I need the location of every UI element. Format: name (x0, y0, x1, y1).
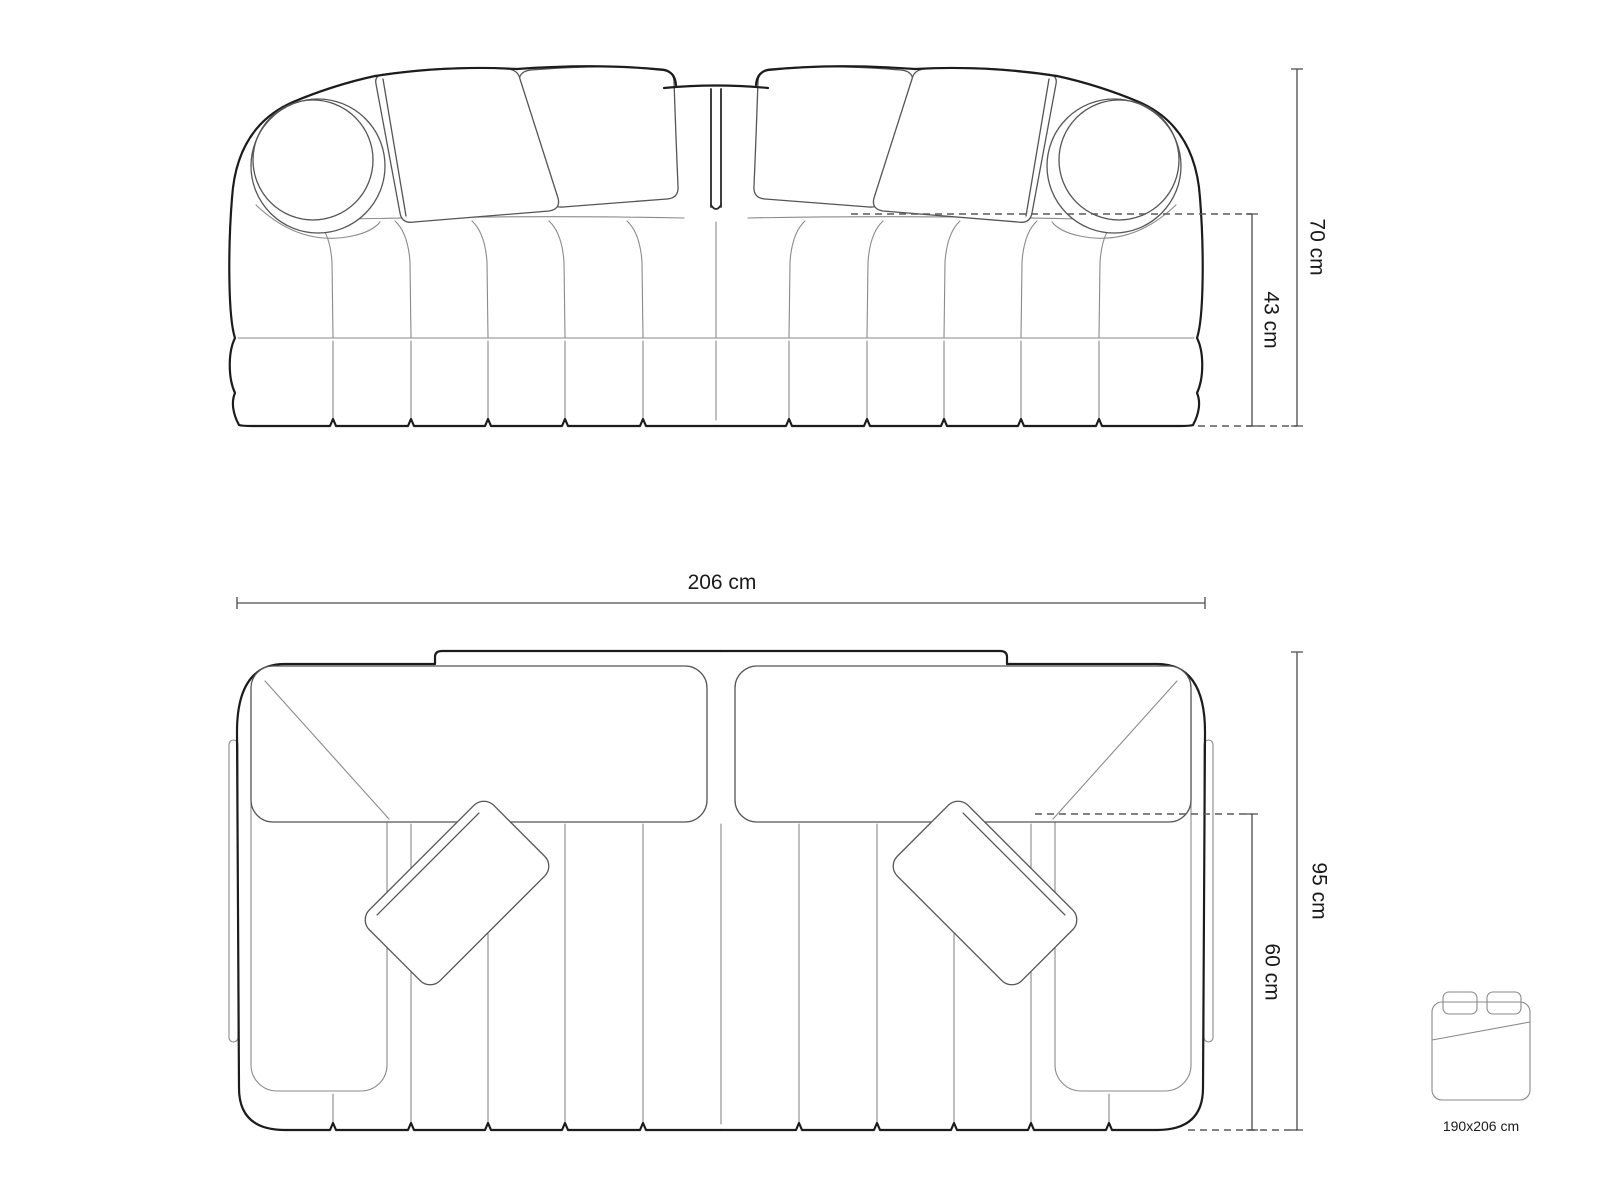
back-cushion-top-view (735, 666, 1191, 822)
seat-channel-line (1021, 221, 1037, 338)
top-bottom-edge (721, 1088, 1203, 1130)
seat-channel-line (627, 221, 643, 338)
seat-channel-line (472, 221, 488, 338)
dim-overall-width-label: 206 cm (688, 571, 757, 594)
front-view-drawing (229, 66, 1202, 426)
seat-channel-line (944, 221, 960, 338)
bed-icon: 190x206 cm (1432, 992, 1530, 1134)
back-top-edge-center (664, 86, 768, 89)
front-center-split (664, 86, 768, 421)
overall-width-dim-line (237, 597, 1205, 609)
sofa-technical-drawing: 70 cm 43 cm 206 cm 95 cm 60 cm 190x206 c… (0, 0, 1600, 1200)
bed-pillow-right (1487, 992, 1521, 1014)
sofa-bottom-edge (716, 419, 1193, 426)
throw-pillow-shape (359, 795, 554, 990)
bolster-cushion (1047, 99, 1181, 233)
throw-pillow-shape (887, 795, 1082, 990)
seat-depth-dim-line (1246, 814, 1258, 1130)
bolster-cushion (251, 99, 385, 233)
top-view-drawing (229, 651, 1213, 1130)
seat-channel-line (395, 221, 411, 338)
bed-pillow-left (1443, 992, 1477, 1014)
top-left-half (229, 651, 721, 1130)
sofa-bottom-edge (239, 419, 716, 426)
seat-height-dim-line (1246, 214, 1258, 426)
top-right-half (721, 651, 1213, 1130)
back-cushion-top-view (251, 666, 707, 822)
sleeping-area-label: 190x206 cm (1443, 1118, 1519, 1134)
bed-fold-line (1432, 1022, 1530, 1040)
back-split-bottom (711, 205, 721, 209)
diagram-canvas: 70 cm 43 cm 206 cm 95 cm 60 cm 190x206 c… (0, 0, 1600, 1200)
front-left-half (229, 66, 716, 426)
dim-overall-height-label: 70 cm (1306, 218, 1329, 275)
bed-outline (1432, 1002, 1530, 1100)
throw-pillow-top-view (887, 795, 1082, 990)
overall-height-dim-line (1291, 69, 1303, 426)
front-right-half (716, 66, 1203, 426)
dim-seat-height-label: 43 cm (1260, 291, 1283, 348)
seat-channel-line (789, 221, 805, 338)
seat-channel-line (549, 221, 565, 338)
overall-depth-dim-line (1291, 652, 1303, 1130)
dim-overall-depth-label: 95 cm (1308, 862, 1331, 919)
seat-channel-line (867, 221, 883, 338)
top-bottom-edge (239, 1088, 721, 1130)
throw-pillow-top-view (359, 795, 554, 990)
dim-seat-depth-label: 60 cm (1261, 943, 1284, 1000)
